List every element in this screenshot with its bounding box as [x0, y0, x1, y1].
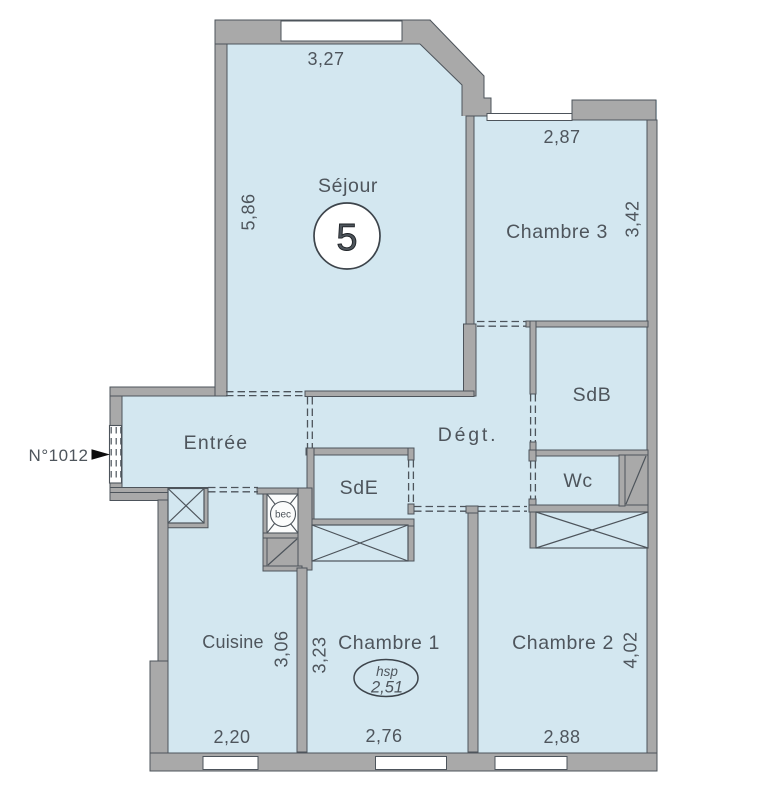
- svg-text:Séjour: Séjour: [318, 175, 378, 197]
- svg-text:Chambre 2: Chambre 2: [512, 632, 614, 654]
- svg-text:3,42: 3,42: [623, 200, 643, 237]
- svg-text:5,86: 5,86: [239, 193, 259, 230]
- svg-text:2,20: 2,20: [213, 727, 250, 747]
- svg-text:bec: bec: [275, 510, 291, 521]
- svg-text:3,06: 3,06: [272, 630, 292, 667]
- svg-text:3,23: 3,23: [310, 636, 330, 673]
- svg-text:N°1012: N°1012: [29, 446, 89, 465]
- svg-text:4,02: 4,02: [621, 631, 641, 668]
- svg-text:Entrée: Entrée: [184, 432, 249, 454]
- svg-text:Wc: Wc: [563, 470, 592, 492]
- svg-text:3,27: 3,27: [307, 49, 344, 69]
- svg-text:hsp: hsp: [376, 664, 398, 679]
- svg-text:2,51: 2,51: [370, 679, 403, 697]
- svg-text:Dégt.: Dégt.: [438, 424, 499, 446]
- svg-text:2,87: 2,87: [543, 127, 580, 147]
- svg-text:2,88: 2,88: [543, 727, 580, 747]
- svg-text:Chambre 3: Chambre 3: [506, 221, 608, 243]
- svg-text:SdB: SdB: [573, 384, 612, 406]
- svg-text:Cuisine: Cuisine: [202, 632, 263, 652]
- svg-text:2,76: 2,76: [365, 726, 402, 746]
- svg-text:Chambre 1: Chambre 1: [338, 632, 440, 654]
- svg-text:SdE: SdE: [340, 477, 379, 499]
- svg-text:5: 5: [336, 217, 357, 259]
